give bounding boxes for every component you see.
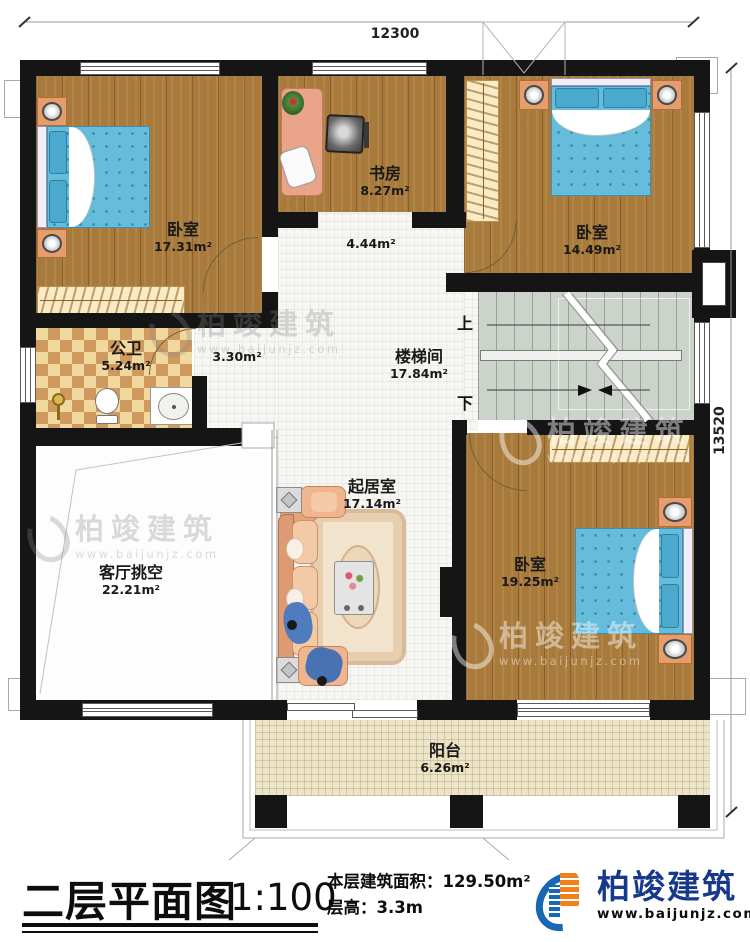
wall [417,700,517,720]
room-label-bedroom1: 卧室 17.31m² [123,221,243,254]
coffee-table [334,561,374,615]
wall [446,273,710,292]
floor-plan: 卧室 17.31m² 书房 8.27m² 4.44m² 卧室 14.49m² 公… [0,0,750,860]
wall [694,60,710,112]
window [80,62,220,75]
wall [20,428,242,446]
bed [551,78,651,196]
floorplan-page: { "dimensions": { "top": "12300", "right… [0,0,750,939]
sink-icon [150,387,196,425]
floor-area-line: 本层建筑面积：129.50m² [327,874,531,891]
bed [575,528,693,634]
wardrobe [466,80,499,222]
balcony-column [678,795,710,828]
nightstand [37,229,67,258]
room-label-bedroom2: 卧室 14.49m² [532,224,652,257]
room-label-balcony: 阳台 6.26m² [385,742,505,775]
plan-scale: 1:100 [230,876,337,919]
stairs-up-label: 上 [457,310,473,334]
side-table [276,487,302,513]
brand-logo: 柏竣建筑 www.baijunjz.com [538,868,750,924]
sliding-door [287,703,355,711]
headboard [37,126,47,228]
toilet-icon [94,388,122,426]
throw-pillow [286,538,304,560]
dimension-top: 12300 [345,26,445,42]
balcony-column [450,795,483,828]
floor-drain-stem [57,406,60,420]
window [20,347,36,403]
sliding-door [352,710,418,718]
wardrobe [37,286,185,314]
room-label-corridor: 3.30m² [197,349,277,365]
title-underline [22,923,318,927]
wall [650,700,710,720]
wall [262,212,318,228]
wall [192,376,207,430]
room-label-stairwell: 楼梯间 17.84m² [359,348,479,381]
toilet-bowl [95,388,119,414]
table-knob [358,605,364,611]
wall [20,313,278,328]
balcony-column [255,795,287,828]
computer-monitor-icon [325,114,365,154]
monitor-stand [364,122,369,148]
wall [262,60,278,237]
nightstand [658,634,692,664]
brand-name: 柏竣建筑 [597,870,750,903]
window [82,703,213,717]
headboard [551,78,651,86]
title-block: 二层平面图 1:100 本层建筑面积：129.50m² 层高：3.3m 柏竣建筑… [0,860,750,939]
person-head [287,620,297,630]
nightstand [652,80,682,110]
pillow [49,131,67,174]
flower-vase-icon [341,568,367,594]
room-label-bedroom3: 卧室 19.25m² [470,556,590,589]
stair-flight-outline [558,298,690,410]
room-label-living: 起居室 17.14m² [312,478,432,511]
plan-info: 本层建筑面积：129.50m² 层高：3.3m [327,874,531,925]
nightstand [519,80,549,110]
dimension-right: 13520 [712,375,728,455]
wardrobe [549,434,690,463]
pillow [555,88,599,108]
headboard [683,528,693,634]
pillow [661,584,679,628]
window [694,112,710,248]
sink-drain [172,405,176,409]
title-underline [22,931,318,933]
nightstand [37,97,67,126]
wall [694,404,710,720]
room-label-void: 客厅挑空 22.21m² [71,564,191,597]
person-head [317,676,327,686]
room-label-study: 书房 8.27m² [325,165,445,198]
room-label-hall: 4.44m² [331,236,411,252]
flue-inner [702,262,726,306]
window [694,322,710,404]
side-table-top [281,492,298,509]
toilet-tank [96,415,118,424]
floor-drain-icon [52,393,65,406]
table-knob [344,605,350,611]
wall [452,435,466,700]
wall [446,60,464,223]
wall [452,420,467,435]
brand-url: www.baijunjz.com [597,906,750,922]
bed [37,126,150,228]
window [517,703,650,717]
floor-height-line: 层高：3.3m [327,900,531,917]
stairs-down-label: 下 [457,390,473,414]
side-table-top [281,662,298,679]
wall-stub [440,567,452,617]
wall [527,420,694,435]
wall [255,700,287,720]
brand-logo-icon [538,868,588,924]
pillow [49,180,67,223]
room-label-bathroom: 公卫 5.24m² [66,340,186,373]
pillow [603,88,647,108]
nightstand [658,497,692,527]
pillow [661,534,679,578]
window [312,62,427,75]
plan-title: 二层平面图 [22,868,237,929]
plant-icon [282,91,304,115]
